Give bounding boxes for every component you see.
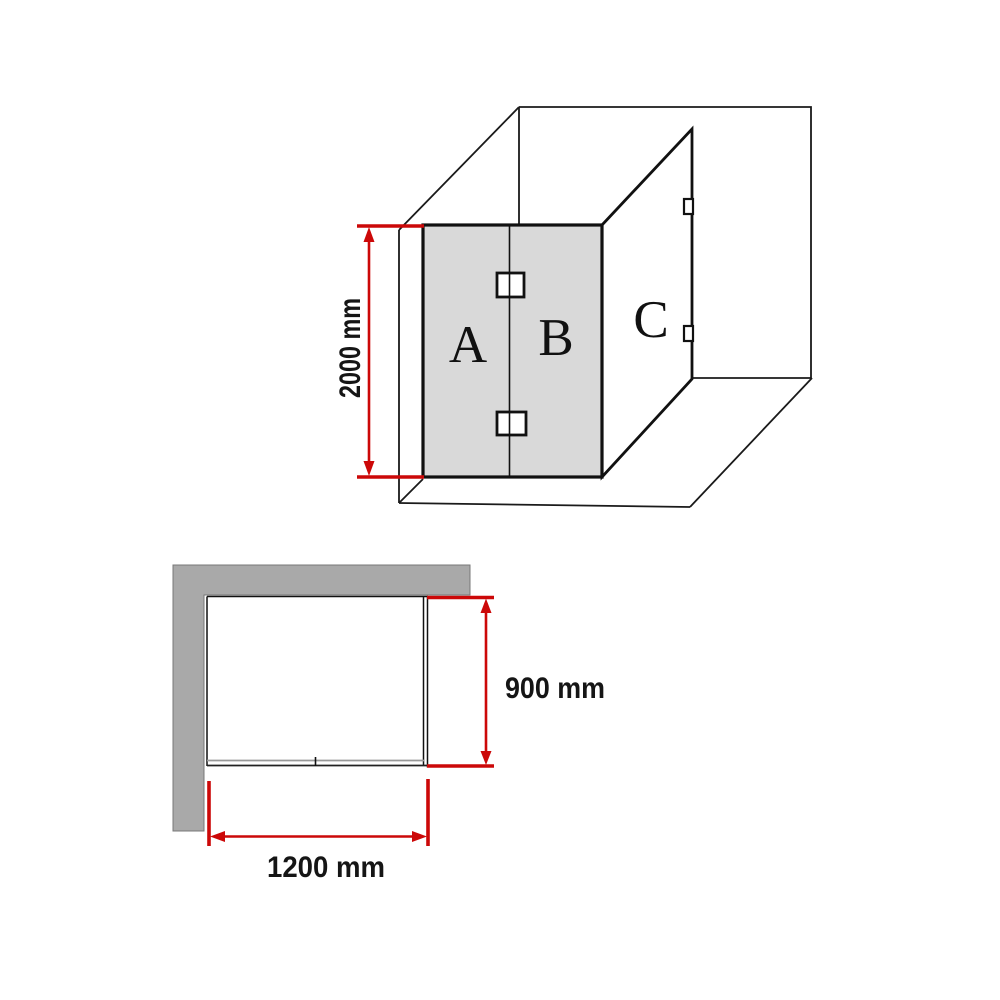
height-dim-arrowhead-down [364, 461, 375, 476]
width-dimension: 1200 mm [209, 779, 428, 884]
plan-panel-c [424, 597, 428, 768]
panel-b-label: B [538, 309, 573, 367]
diagram-canvas: A B C 2000 mm [0, 0, 1000, 1000]
left-wall-bottom-slant [399, 479, 423, 503]
panel-c-label: C [633, 291, 668, 349]
panel-a-label: A [449, 316, 487, 374]
hinge-top [497, 273, 524, 297]
depth-dimension-label: 900 mm [505, 672, 605, 705]
depth-dimension: 900 mm [427, 598, 605, 767]
plan-view: 900 mm 1200 mm [173, 565, 605, 884]
floor-right-edge [690, 378, 812, 507]
width-dimension-label: 1200 mm [267, 851, 385, 884]
height-dimension-label: 2000 mm [334, 298, 367, 398]
left-wall-top-slant [399, 107, 519, 230]
wall-bracket-bottom [684, 326, 693, 341]
height-dimension: 2000 mm [334, 226, 424, 477]
floor-front-edge [399, 503, 690, 507]
plan-wall [173, 565, 470, 831]
glass-panels: A B C [423, 129, 693, 477]
height-dim-arrowhead-up [364, 227, 375, 242]
wall-bracket-top [684, 199, 693, 214]
width-dim-arrowhead-left [210, 831, 225, 842]
depth-dim-arrowhead-up [481, 599, 492, 614]
isometric-view: A B C 2000 mm [334, 107, 812, 507]
plan-panel-ab [207, 757, 429, 766]
hinge-bottom [497, 412, 526, 435]
width-dim-arrowhead-right [412, 831, 427, 842]
shower-screen-dimension-diagram: A B C 2000 mm [0, 0, 1000, 1000]
depth-dim-arrowhead-down [481, 751, 492, 765]
